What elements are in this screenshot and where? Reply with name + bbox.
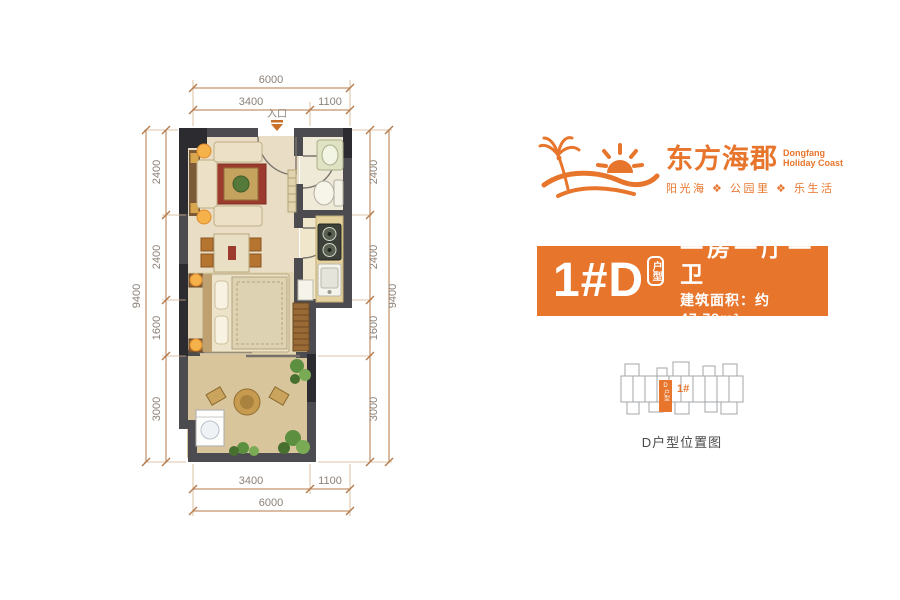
- toilet-tank: [334, 180, 343, 206]
- lamp: [197, 144, 211, 158]
- building-number-label: 1#: [677, 383, 689, 395]
- toilet: [314, 181, 334, 205]
- sofa: [197, 160, 217, 208]
- sofa: [214, 142, 262, 162]
- lamp: [197, 210, 211, 224]
- brand-name-en: Dongfang Holiday Coast: [783, 148, 843, 169]
- dim-top-seg-2: 1100: [318, 96, 342, 108]
- brand-logo: 东方海郡 Dongfang Holiday Coast 阳光海 ❖ 公园里 ❖ …: [538, 126, 848, 216]
- dim-right-seg-4: 3000: [368, 397, 380, 421]
- fridge: [298, 280, 313, 300]
- sofa: [214, 206, 262, 226]
- hall-cabinet: [288, 170, 296, 212]
- blanket: [232, 277, 287, 349]
- dim-right-total: 9400: [387, 284, 399, 308]
- dim-bottom-seg-1: 3400: [239, 475, 263, 487]
- dim-left-seg-3: 1600: [151, 316, 163, 340]
- dining-chair: [201, 238, 213, 251]
- highlighted-unit-label: D户型: [663, 383, 670, 401]
- dim-bottom-total: 6000: [259, 497, 283, 509]
- dim-right-seg-1: 2400: [368, 160, 380, 184]
- entrance-marker: 入口: [267, 109, 287, 131]
- lamp: [190, 274, 202, 286]
- floorplan-drawing: 6000 3400 1100 3400 1100 6000 2400 2400 …: [0, 0, 460, 600]
- page: 6000 3400 1100 3400 1100 6000 2400 2400 …: [0, 0, 900, 600]
- brand-name-cn: 东方海郡: [666, 146, 778, 173]
- building-footprint: D户型 1#: [616, 356, 748, 424]
- dining-chair: [201, 254, 213, 267]
- unit-code: 1#D: [553, 248, 644, 314]
- unit-badge: 1#D 户型 一房一厅一卫 建筑面积：约47.73m²: [537, 246, 828, 316]
- location-map-caption: D户型位置图: [612, 432, 752, 451]
- palm-sun-waves-icon: [538, 131, 660, 211]
- table-runner: [228, 246, 236, 260]
- unit-badge-right: 一房一厅一卫 建筑面积：约47.73m²: [680, 236, 828, 326]
- dim-top-seg-1: 3400: [239, 96, 263, 108]
- brand-tagline: 阳光海 ❖ 公园里 ❖ 乐生活: [666, 180, 843, 196]
- dim-top-total: 6000: [259, 74, 283, 86]
- unit-location-map: D户型 1# D户型位置图: [612, 356, 752, 451]
- dim-left-total: 9400: [131, 284, 143, 308]
- unit-area-text: 建筑面积：约47.73m²: [680, 290, 828, 326]
- dim-left-seg-2: 2400: [151, 245, 163, 269]
- dim-right-seg-2: 2400: [368, 245, 380, 269]
- entrance-arrow-icon: [271, 124, 283, 131]
- brand-logo-text: 东方海郡 Dongfang Holiday Coast 阳光海 ❖ 公园里 ❖ …: [666, 146, 843, 196]
- brand-name-en-line1: Dongfang: [783, 148, 825, 158]
- dining-chair: [249, 254, 261, 267]
- dim-left-seg-1: 2400: [151, 160, 163, 184]
- pillow: [215, 316, 228, 344]
- lamp: [190, 339, 202, 351]
- brand-name-en-line2: Holiday Coast: [783, 158, 843, 168]
- dining-chair: [249, 238, 261, 251]
- table-plant: [233, 176, 249, 192]
- unit-type-tag: 户型: [647, 256, 664, 286]
- dim-bottom-seg-2: 1100: [318, 475, 342, 487]
- entrance-arrow-icon: [271, 120, 283, 123]
- unit-layout-summary: 一房一厅一卫: [680, 236, 828, 287]
- dim-right-seg-3: 1600: [368, 316, 380, 340]
- entrance-label: 入口: [267, 109, 287, 120]
- unit-badge-left: 1#D 户型: [553, 248, 664, 314]
- dim-left-seg-4: 3000: [151, 397, 163, 421]
- pillow: [215, 281, 228, 309]
